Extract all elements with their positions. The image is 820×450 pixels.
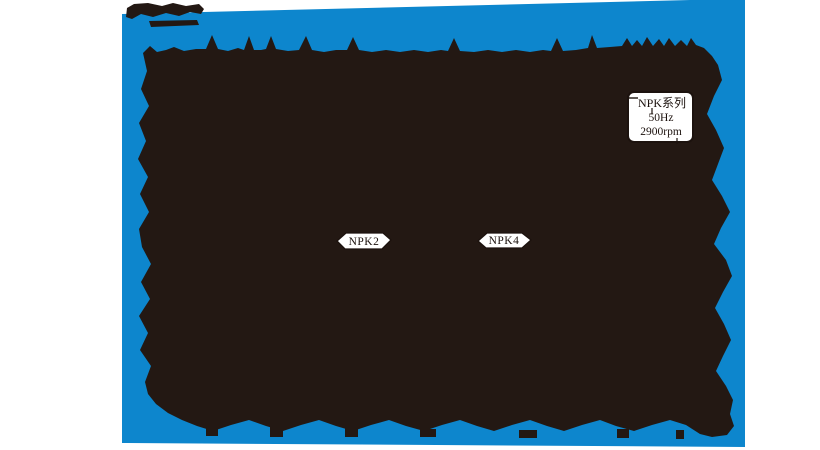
- callout-series-family: NPK系列: [638, 96, 686, 110]
- npk2-tag-text: NPK2: [349, 236, 380, 248]
- performance-chart-scan: NPK系列 50Hz 2900rpm NPK2 NPK4: [0, 0, 820, 450]
- axis-remnant-mark: [270, 427, 283, 437]
- scanned-chart-page: NPK系列 50Hz 2900rpm NPK2 NPK4: [0, 0, 820, 450]
- axis-remnant-mark: [617, 429, 629, 438]
- axis-remnant-mark: [206, 426, 218, 436]
- axis-remnant-mark: [519, 430, 537, 438]
- series-callout: NPK系列 50Hz 2900rpm: [628, 92, 693, 144]
- callout-frequency: 50Hz: [649, 112, 674, 124]
- axis-remnant-mark: [345, 427, 358, 437]
- series-label-npk4: NPK4: [478, 233, 531, 248]
- npk4-tag-text: NPK4: [489, 235, 520, 247]
- axis-remnant-mark: [676, 430, 684, 439]
- series-label-npk2: NPK2: [337, 233, 391, 249]
- callout-speed: 2900rpm: [640, 126, 682, 138]
- axis-remnant-mark: [420, 429, 436, 437]
